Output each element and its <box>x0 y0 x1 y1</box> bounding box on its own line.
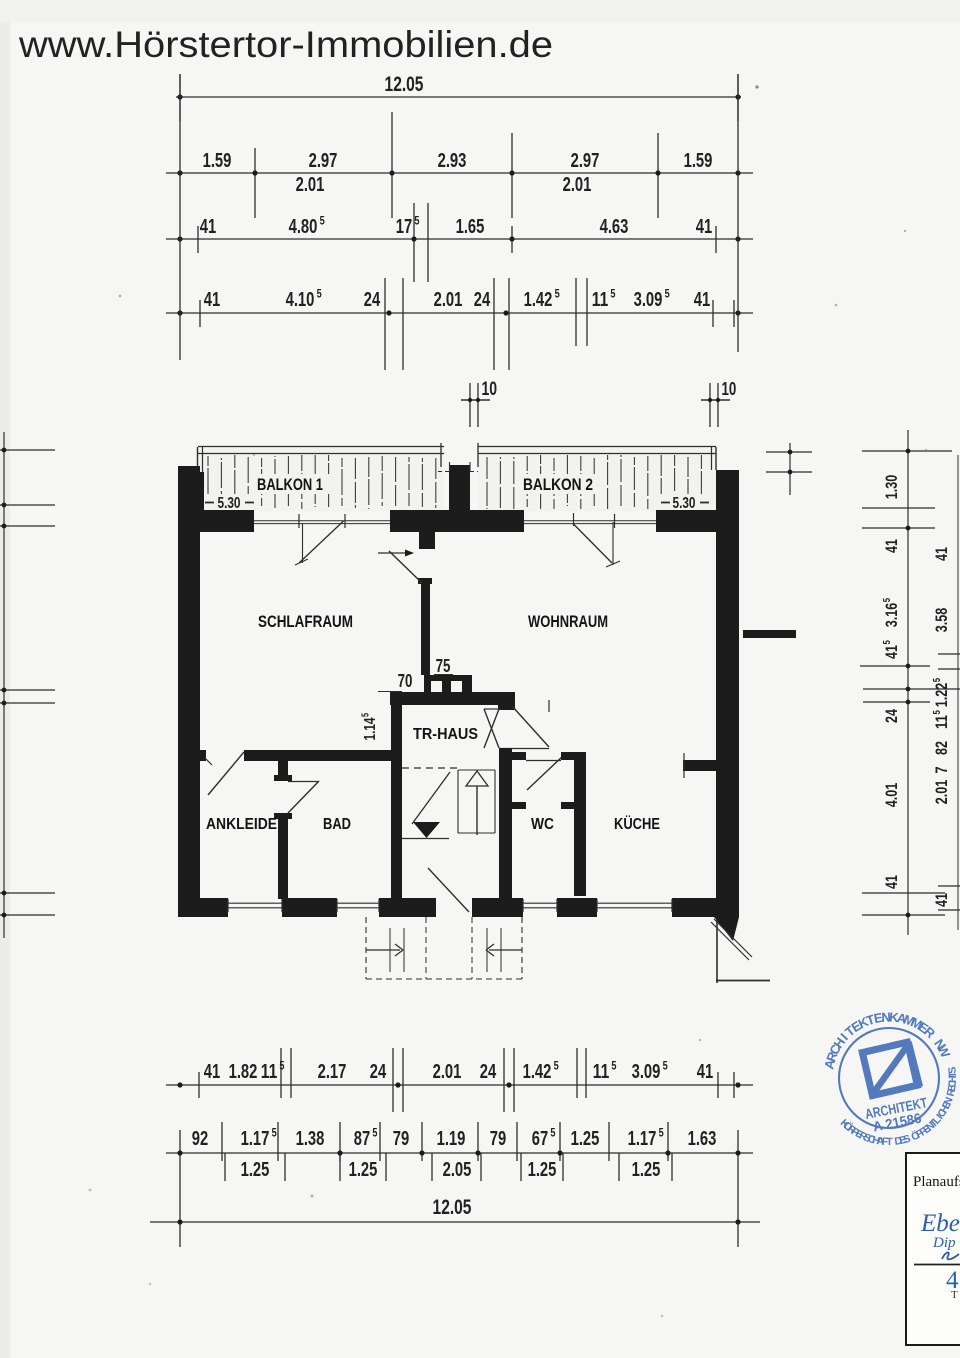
svg-text:1.19: 1.19 <box>437 1128 466 1150</box>
svg-text:17: 17 <box>396 216 412 238</box>
svg-text:1.17: 1.17 <box>628 1128 657 1150</box>
svg-text:KÜCHE: KÜCHE <box>614 814 660 833</box>
svg-text:92: 92 <box>192 1128 208 1150</box>
svg-text:WOHNRAUM: WOHNRAUM <box>528 613 608 631</box>
svg-text:41: 41 <box>882 539 901 553</box>
svg-text:2.01: 2.01 <box>434 289 463 311</box>
svg-text:5: 5 <box>931 710 943 714</box>
svg-text:2.01: 2.01 <box>932 780 951 805</box>
svg-text:2.93: 2.93 <box>438 150 467 172</box>
svg-text:41: 41 <box>882 875 901 889</box>
svg-text:41: 41 <box>696 216 712 238</box>
svg-text:11: 11 <box>932 715 951 729</box>
svg-text:1.25: 1.25 <box>571 1128 600 1150</box>
svg-text:12.05: 12.05 <box>385 73 424 96</box>
svg-text:41: 41 <box>204 1061 220 1083</box>
svg-text:Dip: Dip <box>932 1235 956 1251</box>
svg-text:5: 5 <box>665 287 670 301</box>
svg-text:www.Hörstertor-Immobilien.de: www.Hörstertor-Immobilien.de <box>18 24 553 65</box>
svg-text:5: 5 <box>372 1126 377 1140</box>
svg-text:5.30: 5.30 <box>673 495 696 512</box>
svg-text:5: 5 <box>663 1059 668 1073</box>
svg-text:87: 87 <box>354 1128 370 1150</box>
svg-text:T: T <box>951 1289 958 1301</box>
svg-text:BALKON 1: BALKON 1 <box>257 475 323 494</box>
svg-text:5: 5 <box>554 1059 559 1073</box>
svg-text:1.38: 1.38 <box>296 1128 325 1150</box>
svg-text:5: 5 <box>931 678 943 682</box>
svg-text:S: S <box>946 1066 959 1074</box>
svg-text:2.17: 2.17 <box>318 1061 347 1083</box>
svg-text:24: 24 <box>474 289 491 311</box>
svg-text:2.01: 2.01 <box>433 1061 462 1083</box>
svg-text:Planaufst: Planaufst <box>913 1174 960 1190</box>
svg-text:TR-HAUS: TR-HAUS <box>413 726 478 743</box>
svg-text:1.25: 1.25 <box>632 1159 661 1181</box>
svg-text:5: 5 <box>610 287 615 301</box>
svg-text:24: 24 <box>882 709 901 723</box>
svg-text:1.22: 1.22 <box>932 683 951 708</box>
svg-text:BAD: BAD <box>323 816 351 833</box>
svg-text:3.58: 3.58 <box>932 608 951 633</box>
svg-text:5.30: 5.30 <box>218 495 241 512</box>
svg-text:4.80: 4.80 <box>289 216 318 238</box>
svg-text:75: 75 <box>436 656 451 676</box>
svg-text:5: 5 <box>881 640 893 644</box>
svg-text:10: 10 <box>482 379 498 400</box>
svg-text:1.65: 1.65 <box>456 216 485 238</box>
svg-text:2.05: 2.05 <box>443 1159 472 1181</box>
svg-text:3.16: 3.16 <box>882 603 901 628</box>
svg-text:1.59: 1.59 <box>684 150 713 172</box>
svg-text:5: 5 <box>320 214 325 228</box>
svg-text:1.14: 1.14 <box>362 717 379 740</box>
svg-text:2.01: 2.01 <box>296 174 325 196</box>
svg-text:1.25: 1.25 <box>528 1159 557 1181</box>
svg-text:2.97: 2.97 <box>309 150 338 172</box>
svg-text:ANKLEIDE: ANKLEIDE <box>206 816 277 833</box>
svg-text:BALKON 2: BALKON 2 <box>523 475 593 494</box>
svg-text:1.30: 1.30 <box>882 475 901 500</box>
svg-text:4.10: 4.10 <box>286 289 315 311</box>
svg-text:1.42: 1.42 <box>524 289 553 311</box>
svg-text:5: 5 <box>360 713 371 717</box>
svg-text:2.01: 2.01 <box>563 174 592 196</box>
svg-text:24: 24 <box>370 1061 387 1083</box>
svg-text:41: 41 <box>882 645 901 659</box>
svg-text:4.01: 4.01 <box>882 783 901 808</box>
svg-text:11: 11 <box>261 1061 277 1083</box>
svg-text:1.42: 1.42 <box>523 1061 552 1083</box>
svg-text:5: 5 <box>279 1059 284 1073</box>
svg-text:1.82: 1.82 <box>229 1061 258 1083</box>
svg-text:1.25: 1.25 <box>241 1159 270 1181</box>
svg-text:11: 11 <box>592 289 608 311</box>
svg-text:5: 5 <box>611 1059 616 1073</box>
svg-text:2.97: 2.97 <box>571 150 600 172</box>
svg-text:5: 5 <box>550 1126 555 1140</box>
svg-text:41: 41 <box>200 216 216 238</box>
svg-text:1.59: 1.59 <box>203 150 232 172</box>
svg-text:7: 7 <box>932 767 951 774</box>
svg-text:79: 79 <box>490 1128 506 1150</box>
svg-text:11: 11 <box>593 1061 609 1083</box>
svg-text:5: 5 <box>272 1126 277 1140</box>
svg-text:24: 24 <box>480 1061 497 1083</box>
svg-text:41: 41 <box>932 547 951 561</box>
svg-text:24: 24 <box>364 289 381 311</box>
svg-text:41: 41 <box>204 289 220 311</box>
svg-text:5: 5 <box>659 1126 664 1140</box>
svg-text:SCHLAFRAUM: SCHLAFRAUM <box>258 613 353 631</box>
svg-text:WC: WC <box>531 816 554 833</box>
svg-text:10: 10 <box>722 379 737 399</box>
svg-text:5: 5 <box>414 214 419 228</box>
svg-text:5: 5 <box>317 287 322 301</box>
svg-text:12.05: 12.05 <box>433 1196 472 1219</box>
svg-text:1.25: 1.25 <box>349 1159 378 1181</box>
svg-text:41: 41 <box>697 1061 713 1083</box>
svg-text:41: 41 <box>694 289 710 311</box>
svg-text:1.63: 1.63 <box>688 1128 717 1150</box>
svg-text:3.09: 3.09 <box>634 289 663 311</box>
svg-text:3.09: 3.09 <box>632 1061 661 1083</box>
svg-text:Eber: Eber <box>920 1210 960 1237</box>
svg-text:79: 79 <box>393 1128 409 1150</box>
svg-text:70: 70 <box>398 671 413 691</box>
svg-text:1.17: 1.17 <box>241 1128 270 1150</box>
svg-text:82: 82 <box>932 741 951 755</box>
svg-text:67: 67 <box>532 1128 548 1150</box>
svg-text:41: 41 <box>932 893 951 907</box>
svg-text:4.63: 4.63 <box>600 216 629 238</box>
svg-text:T: T <box>886 1136 893 1148</box>
svg-text:5: 5 <box>881 598 893 602</box>
svg-text:5: 5 <box>555 287 560 301</box>
